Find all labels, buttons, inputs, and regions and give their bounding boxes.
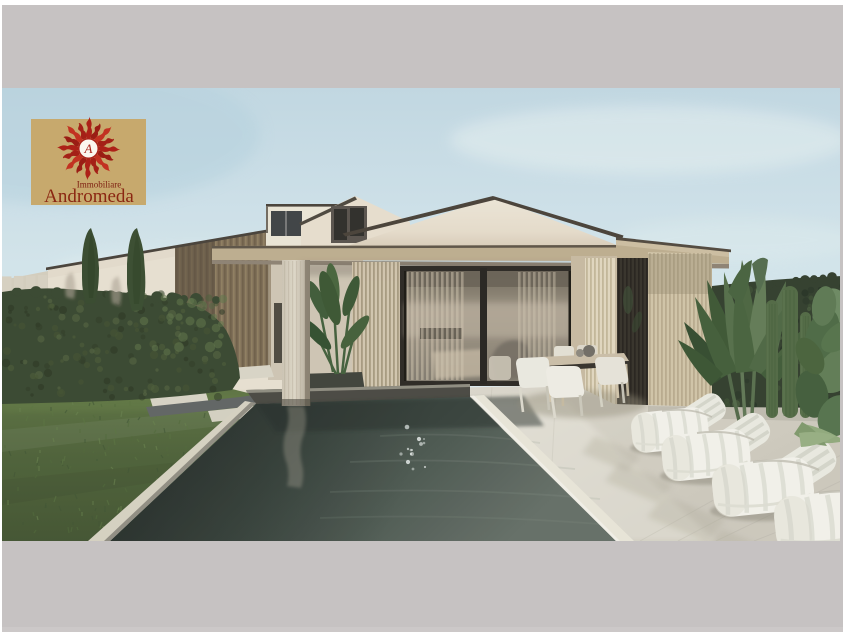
svg-text:Andromeda: Andromeda xyxy=(44,186,134,207)
svg-text:A: A xyxy=(84,141,93,156)
